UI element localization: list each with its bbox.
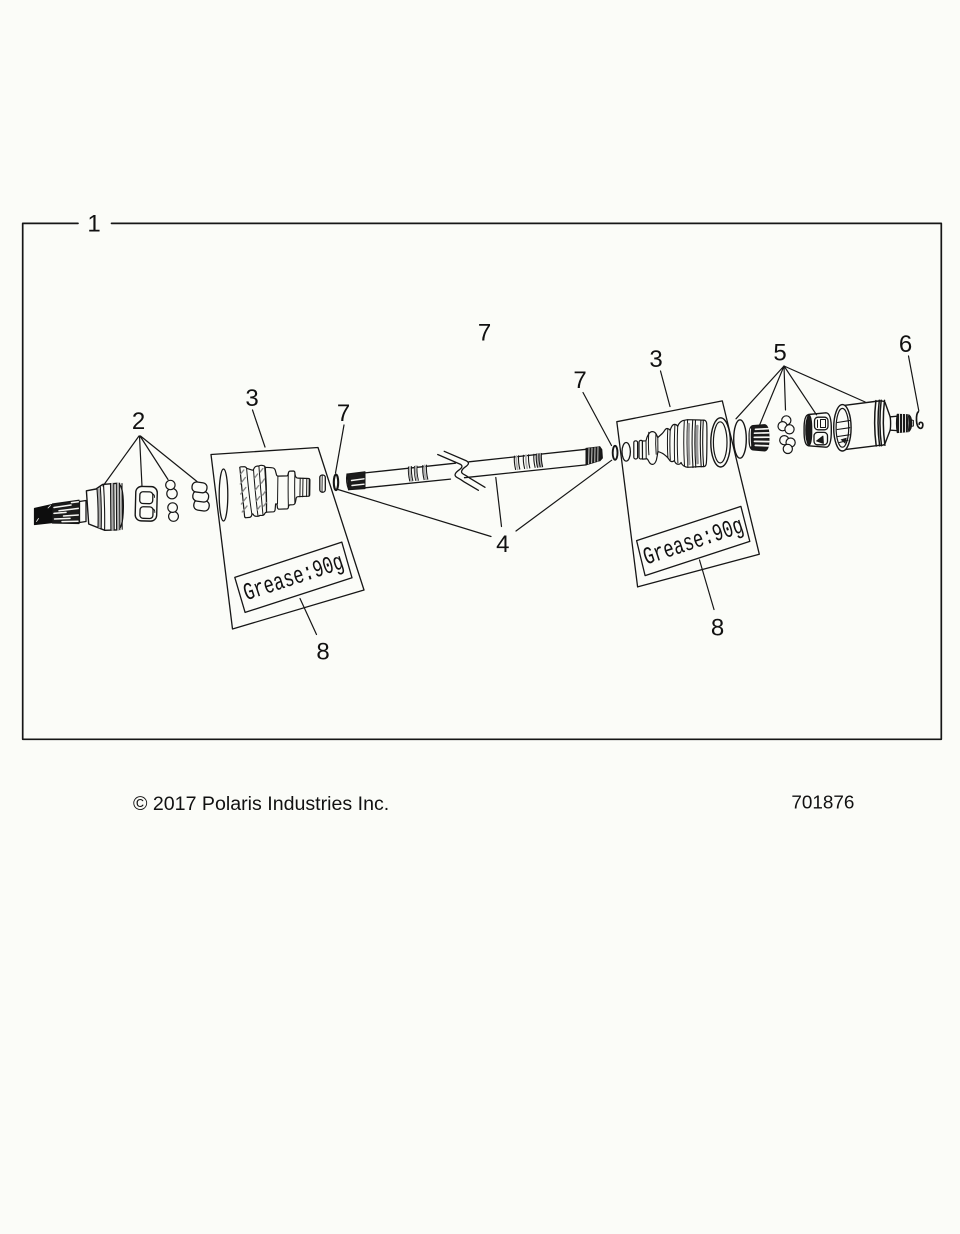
svg-text:© 2017 Polaris Industries Inc.: © 2017 Polaris Industries Inc. <box>133 793 389 815</box>
svg-text:8: 8 <box>711 615 724 642</box>
svg-text:1: 1 <box>87 211 100 238</box>
svg-text:3: 3 <box>649 346 662 373</box>
svg-text:7: 7 <box>337 400 350 427</box>
svg-text:6: 6 <box>899 331 912 358</box>
svg-text:5: 5 <box>773 340 786 367</box>
svg-text:7: 7 <box>573 367 586 394</box>
svg-text:701876: 701876 <box>791 793 854 814</box>
svg-text:3: 3 <box>245 385 258 412</box>
svg-text:2: 2 <box>132 408 145 435</box>
svg-text:4: 4 <box>496 531 509 558</box>
svg-text:8: 8 <box>316 639 329 666</box>
svg-text:7: 7 <box>478 320 491 347</box>
